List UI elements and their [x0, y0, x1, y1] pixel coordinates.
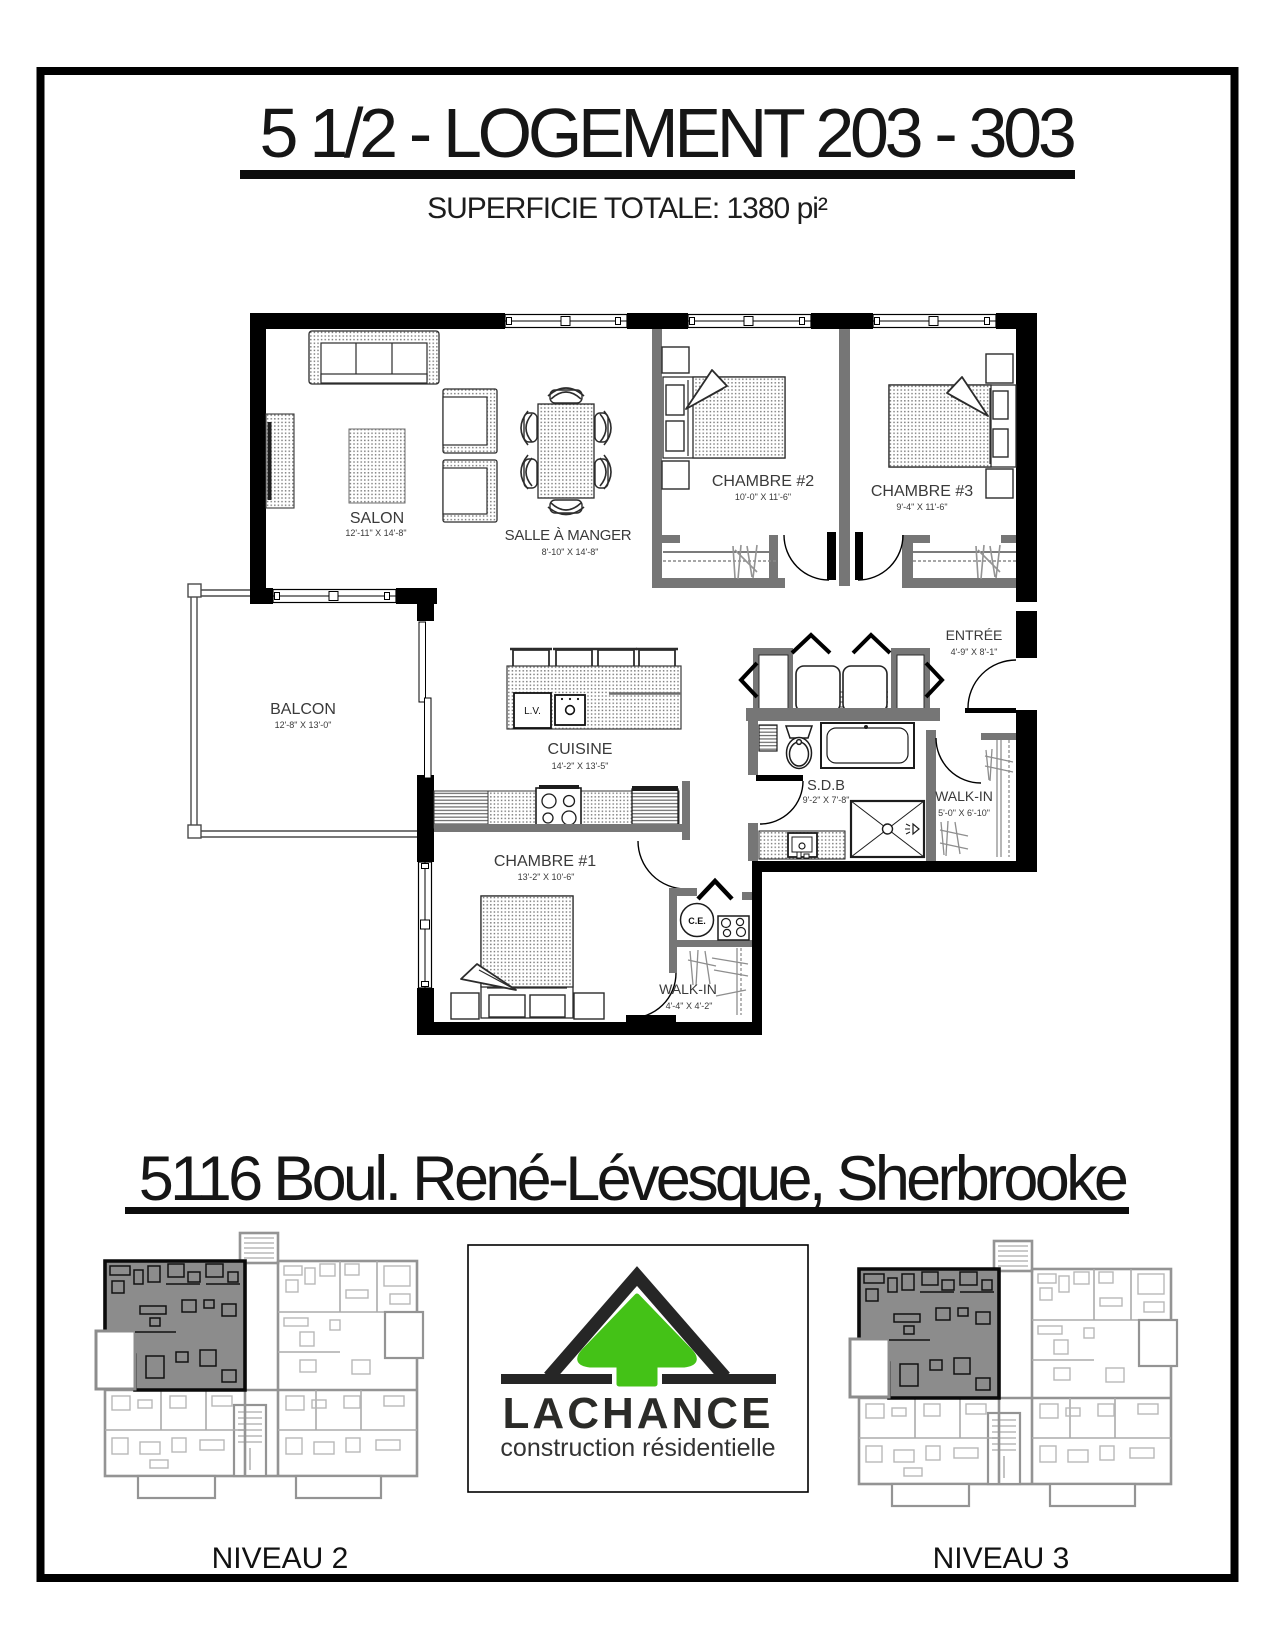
svg-text:5'-0" X 6'-10": 5'-0" X 6'-10" [938, 808, 990, 818]
svg-text:LACHANCE: LACHANCE [503, 1389, 774, 1438]
svg-text:12'-8" X 13'-0": 12'-8" X 13'-0" [275, 720, 332, 730]
svg-text:NIVEAU 3: NIVEAU 3 [933, 1542, 1070, 1575]
svg-text:9'-2" X 7'-8": 9'-2" X 7'-8" [803, 795, 850, 805]
svg-text:13'-2" X 10'-6": 13'-2" X 10'-6" [518, 872, 575, 882]
svg-text:10'-0" X 11'-6": 10'-0" X 11'-6" [735, 492, 791, 502]
svg-text:S.D.B: S.D.B [807, 778, 845, 794]
svg-text:SALLE À MANGER: SALLE À MANGER [505, 527, 632, 544]
svg-text:WALK-IN: WALK-IN [935, 788, 993, 804]
svg-text:BALCON: BALCON [270, 701, 336, 718]
svg-text:8'-10" X 14'-8": 8'-10" X 14'-8" [542, 547, 599, 557]
svg-text:9'-4" X 11'-6": 9'-4" X 11'-6" [896, 502, 947, 512]
svg-text:C.E.: C.E. [688, 916, 706, 926]
svg-text:construction résidentielle: construction résidentielle [500, 1434, 775, 1462]
svg-text:ENTRÉE: ENTRÉE [946, 627, 1003, 643]
svg-text:SALON: SALON [350, 510, 404, 527]
svg-text:12'-11" X 14'-8": 12'-11" X 14'-8" [345, 528, 406, 538]
svg-text:4'-4" X 4'-2": 4'-4" X 4'-2" [666, 1001, 713, 1011]
svg-text:CHAMBRE #2: CHAMBRE #2 [712, 473, 814, 490]
svg-text:NIVEAU 2: NIVEAU 2 [212, 1542, 349, 1575]
svg-text:L.V.: L.V. [524, 706, 541, 717]
svg-text:CHAMBRE #3: CHAMBRE #3 [871, 483, 973, 500]
svg-text:WALK-IN: WALK-IN [659, 981, 717, 997]
svg-text:CUISINE: CUISINE [548, 741, 613, 758]
svg-text:4'-9" X 8'-1": 4'-9" X 8'-1" [951, 647, 998, 657]
svg-text:SUPERFICIE TOTALE: 1380 pi²: SUPERFICIE TOTALE: 1380 pi² [427, 192, 828, 225]
svg-text:5 1/2 - LOGEMENT 203 - 303: 5 1/2 - LOGEMENT 203 - 303 [260, 94, 1074, 172]
svg-text:CHAMBRE #1: CHAMBRE #1 [494, 853, 596, 870]
svg-text:14'-2" X 13'-5": 14'-2" X 13'-5" [552, 761, 609, 771]
svg-text:5116 Boul. René-Lévesque, Sher: 5116 Boul. René-Lévesque, Sherbrooke [139, 1144, 1127, 1214]
